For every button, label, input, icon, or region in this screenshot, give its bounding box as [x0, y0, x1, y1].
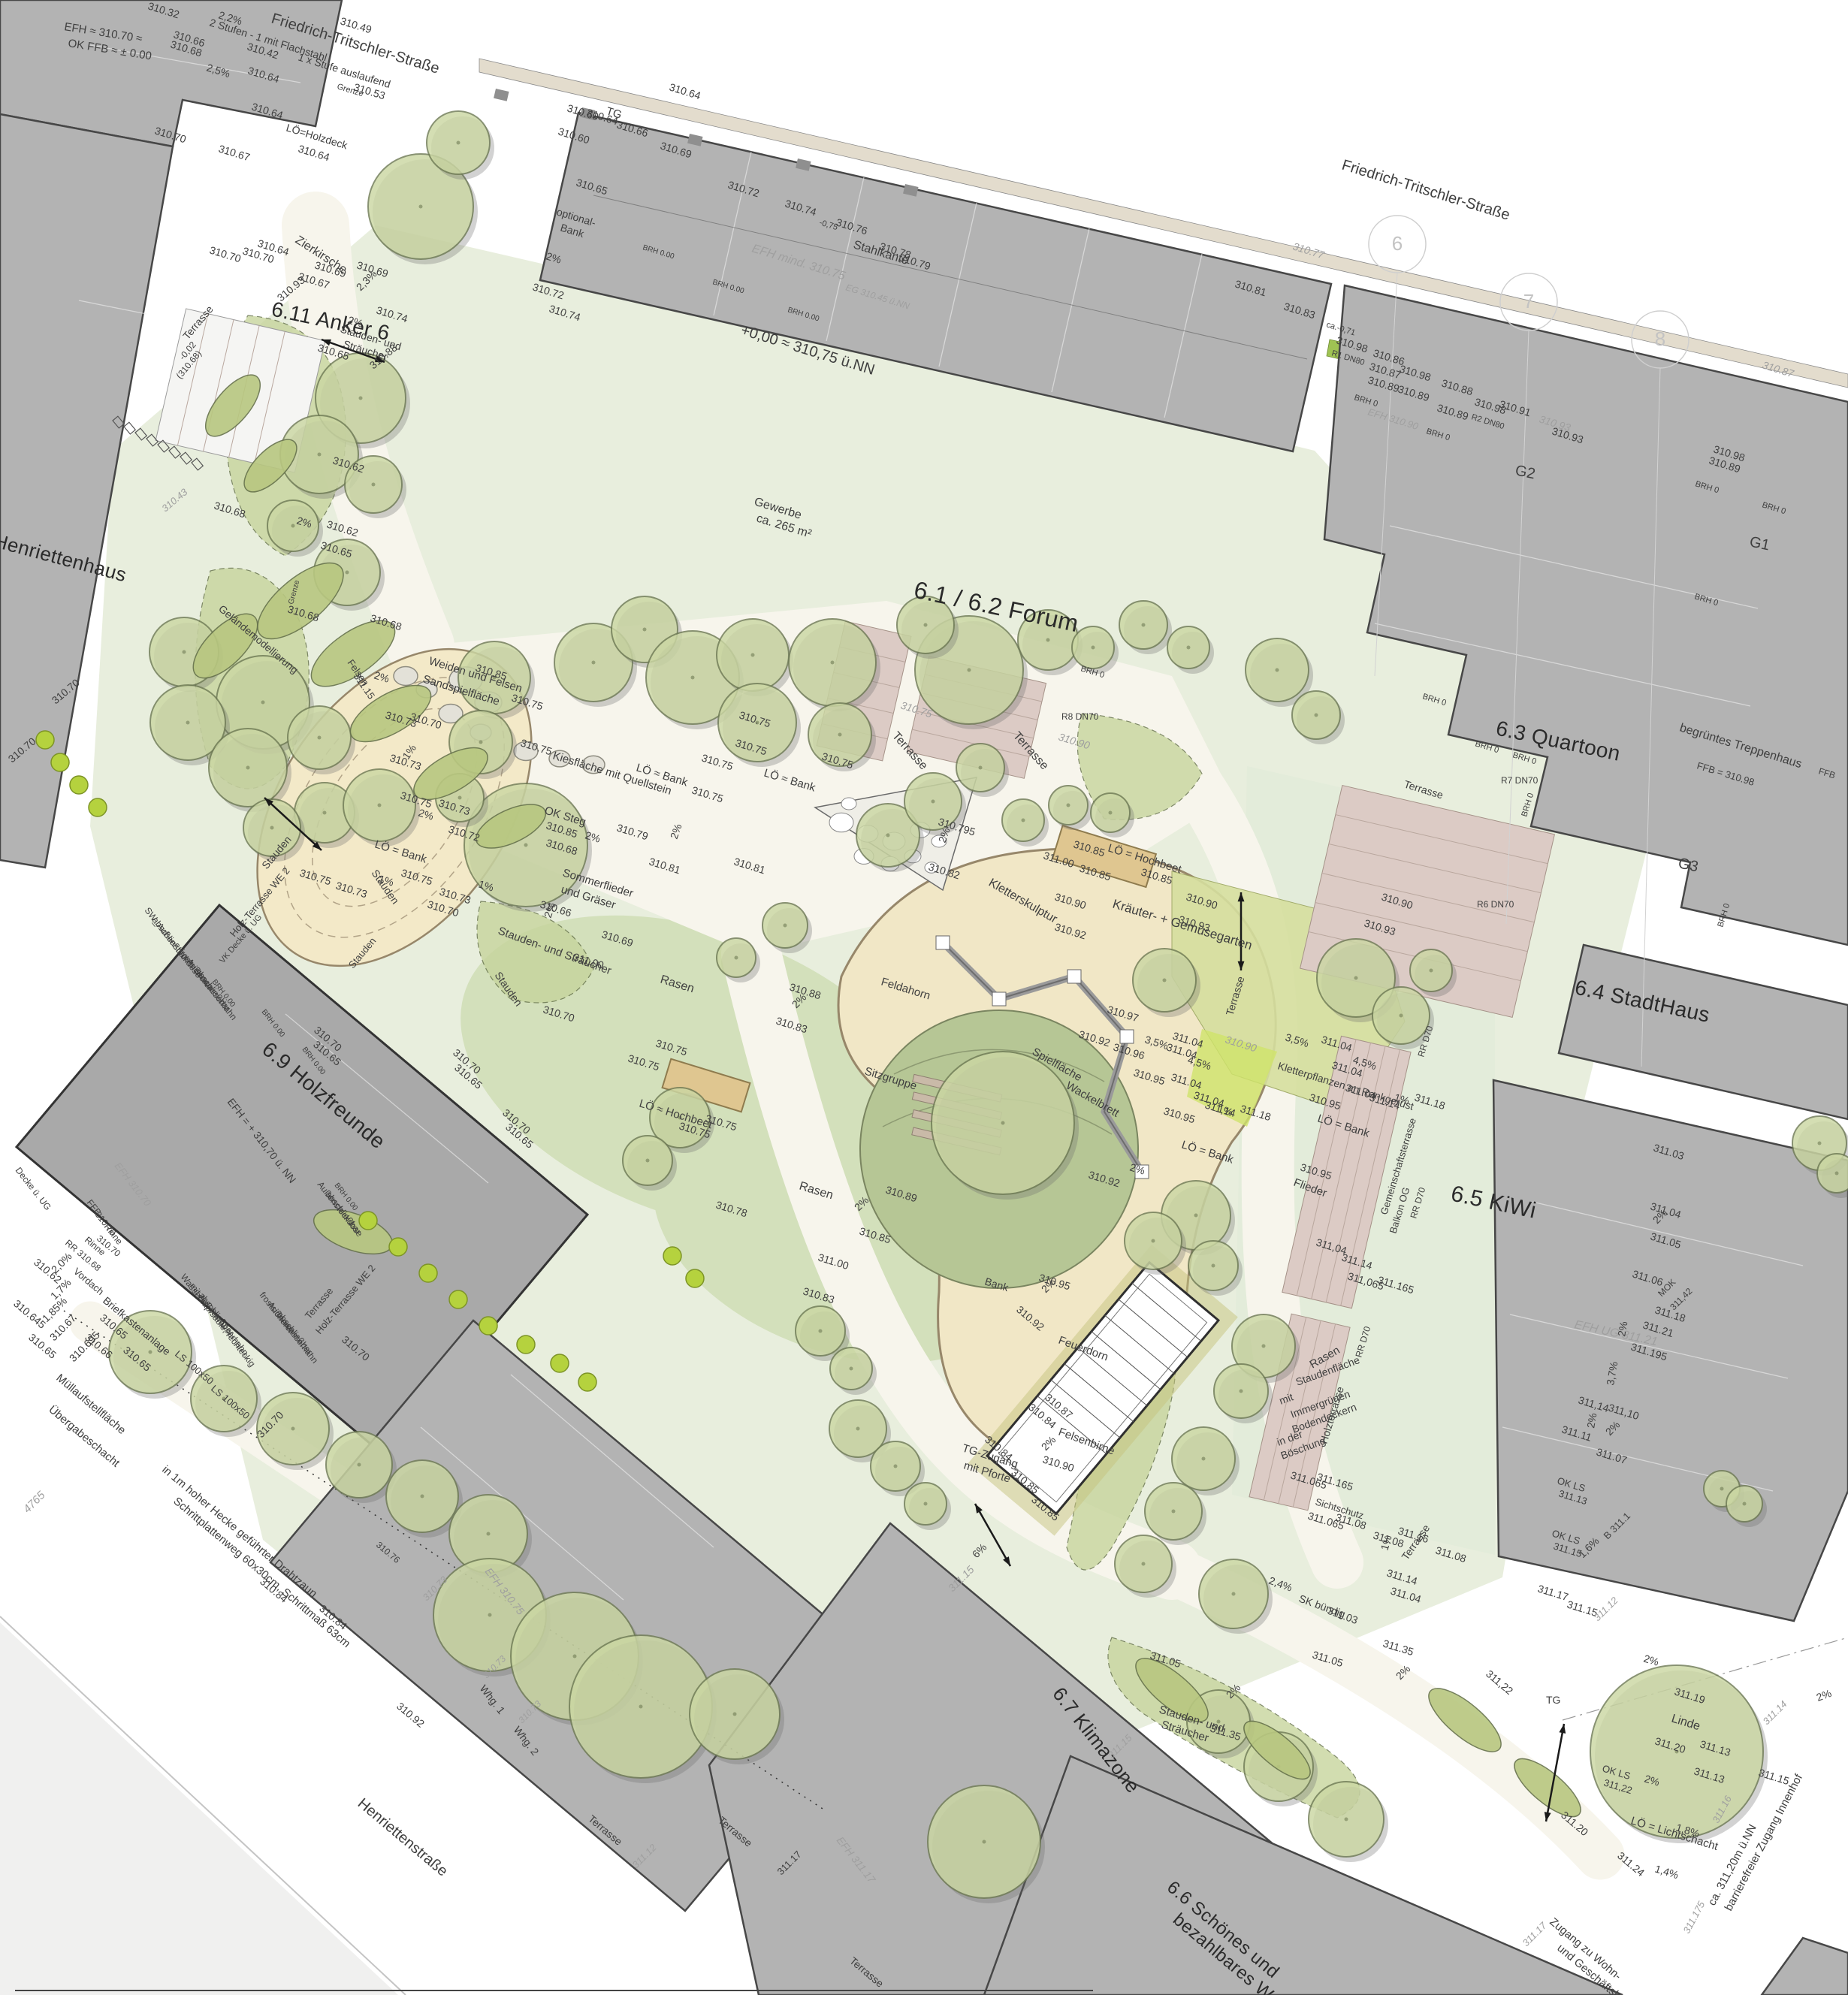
tree-center-dot [149, 1351, 152, 1354]
tree-center-dot [1240, 1390, 1243, 1393]
hedge-dot-icon [36, 731, 54, 749]
tree-center-dot [894, 1465, 898, 1468]
tree-center-dot [1152, 1239, 1155, 1243]
tree-center-dot [346, 571, 349, 575]
tree-center-dot [246, 766, 250, 770]
tree-center-dot [856, 1427, 860, 1431]
tree-center-dot [979, 766, 983, 770]
hedge-dot-icon [551, 1354, 569, 1372]
tree-center-dot [378, 804, 382, 807]
tree-center-dot [1194, 1214, 1198, 1218]
tree-center-dot [784, 924, 787, 928]
hedge-dot-icon [578, 1373, 596, 1391]
hedge-dot-icon [479, 1317, 497, 1335]
tree-center-dot [1232, 1592, 1236, 1596]
tree-center-dot [1172, 1510, 1176, 1514]
tree-center-dot [1001, 1121, 1005, 1125]
tree-center-dot [1743, 1502, 1747, 1506]
hedge-dot-icon [419, 1264, 437, 1282]
tree-center-dot [850, 1367, 853, 1371]
tree-center-dot [838, 733, 842, 737]
hedge-dot-icon [449, 1290, 467, 1308]
tree-center-dot [419, 205, 423, 209]
tree-center-dot [457, 141, 460, 145]
tree-center-dot [983, 1840, 986, 1844]
tree-center-dot [183, 650, 186, 654]
tree-center-dot [691, 676, 695, 680]
tree-center-dot [291, 1427, 295, 1431]
tree-center-dot [1109, 811, 1113, 815]
tree-center-dot [924, 623, 928, 627]
tree-center-dot [1163, 979, 1167, 982]
tree-center-dot [458, 796, 462, 800]
plan-label: R7 DN70 [1501, 775, 1538, 786]
tree-center-dot [968, 669, 971, 672]
grid-bubble-number: 7 [1523, 290, 1534, 312]
stone [394, 667, 418, 686]
hedge-dot-icon [70, 776, 88, 794]
tree-center-dot [735, 956, 738, 960]
hedge-dot-icon [51, 753, 69, 771]
tree-center-dot [573, 1655, 577, 1658]
tree-center-dot [819, 1329, 823, 1333]
tree-center-dot [1142, 623, 1146, 627]
site-plan-page: 678 EFH ≈ 310.70 ≈OK FFB ≈ ± 0.00310.322… [0, 0, 1848, 1995]
tree-center-dot [639, 1705, 643, 1709]
tree-center-dot [932, 800, 935, 804]
hedge-dot-icon [389, 1238, 407, 1256]
tree-center-dot [831, 661, 835, 665]
hedge-dot-icon [89, 798, 107, 816]
tree-center-dot [1046, 638, 1050, 642]
tree-center-dot [318, 736, 322, 740]
tree-center-dot [421, 1495, 424, 1499]
tree-center-dot [1315, 714, 1318, 717]
tree-center-dot [1092, 646, 1095, 650]
hedge-dot-icon [663, 1247, 681, 1265]
building-kiwi [1493, 1080, 1848, 1621]
tree-center-dot [1430, 969, 1433, 973]
tree-center-dot [1262, 1345, 1266, 1348]
tree-center-dot [1818, 1142, 1822, 1145]
hedge-dot-icon [517, 1336, 535, 1354]
tree-center-dot [479, 741, 483, 744]
plan-label: R6 DN70 [1477, 899, 1514, 910]
tree-center-dot [524, 844, 528, 847]
tree-center-dot [358, 1463, 361, 1467]
tree-center-dot [733, 1713, 737, 1716]
tree-center-dot [1212, 1264, 1215, 1268]
tree-center-dot [1202, 1457, 1206, 1461]
plan-label: TG [1546, 1694, 1560, 1706]
tree-center-dot [270, 826, 274, 830]
tree-center-dot [1067, 804, 1070, 807]
tree-icon [1817, 1154, 1848, 1193]
tree-center-dot [1345, 1818, 1348, 1821]
tree-center-dot [592, 661, 596, 665]
tree-center-dot [1354, 976, 1358, 980]
grid-bubble-number: 8 [1655, 327, 1665, 350]
tree-center-dot [886, 834, 890, 838]
tree-center-dot [359, 397, 363, 400]
tree-center-dot [261, 701, 265, 705]
tree-center-dot [372, 483, 376, 487]
tree-center-dot [186, 721, 190, 725]
tree-center-dot [643, 628, 647, 632]
tree-center-dot [323, 811, 327, 815]
tree-center-dot [646, 1159, 650, 1163]
tree-center-dot [291, 524, 295, 528]
pebble [829, 813, 853, 832]
grid-bubble-number: 6 [1392, 232, 1403, 255]
hedge-dot-icon [686, 1269, 704, 1287]
tree-center-dot [318, 453, 322, 457]
tree-center-dot [1835, 1172, 1839, 1176]
tree-center-dot [1022, 819, 1025, 822]
tree-center-dot [1400, 1014, 1403, 1018]
tree-center-dot [1276, 669, 1279, 672]
tree-center-dot [924, 1502, 928, 1506]
plan-label: R8 DN70 [1061, 711, 1099, 722]
pebble [841, 798, 856, 810]
tree-center-dot [488, 1613, 492, 1617]
tree-center-dot [751, 653, 755, 657]
tree-center-dot [1142, 1562, 1146, 1566]
landscape-site-plan: 678 EFH ≈ 310.70 ≈OK FFB ≈ ± 0.00310.322… [0, 0, 1848, 1995]
tree-center-dot [1720, 1487, 1724, 1491]
tree-center-dot [1187, 646, 1191, 650]
tree-center-dot [487, 1532, 491, 1536]
